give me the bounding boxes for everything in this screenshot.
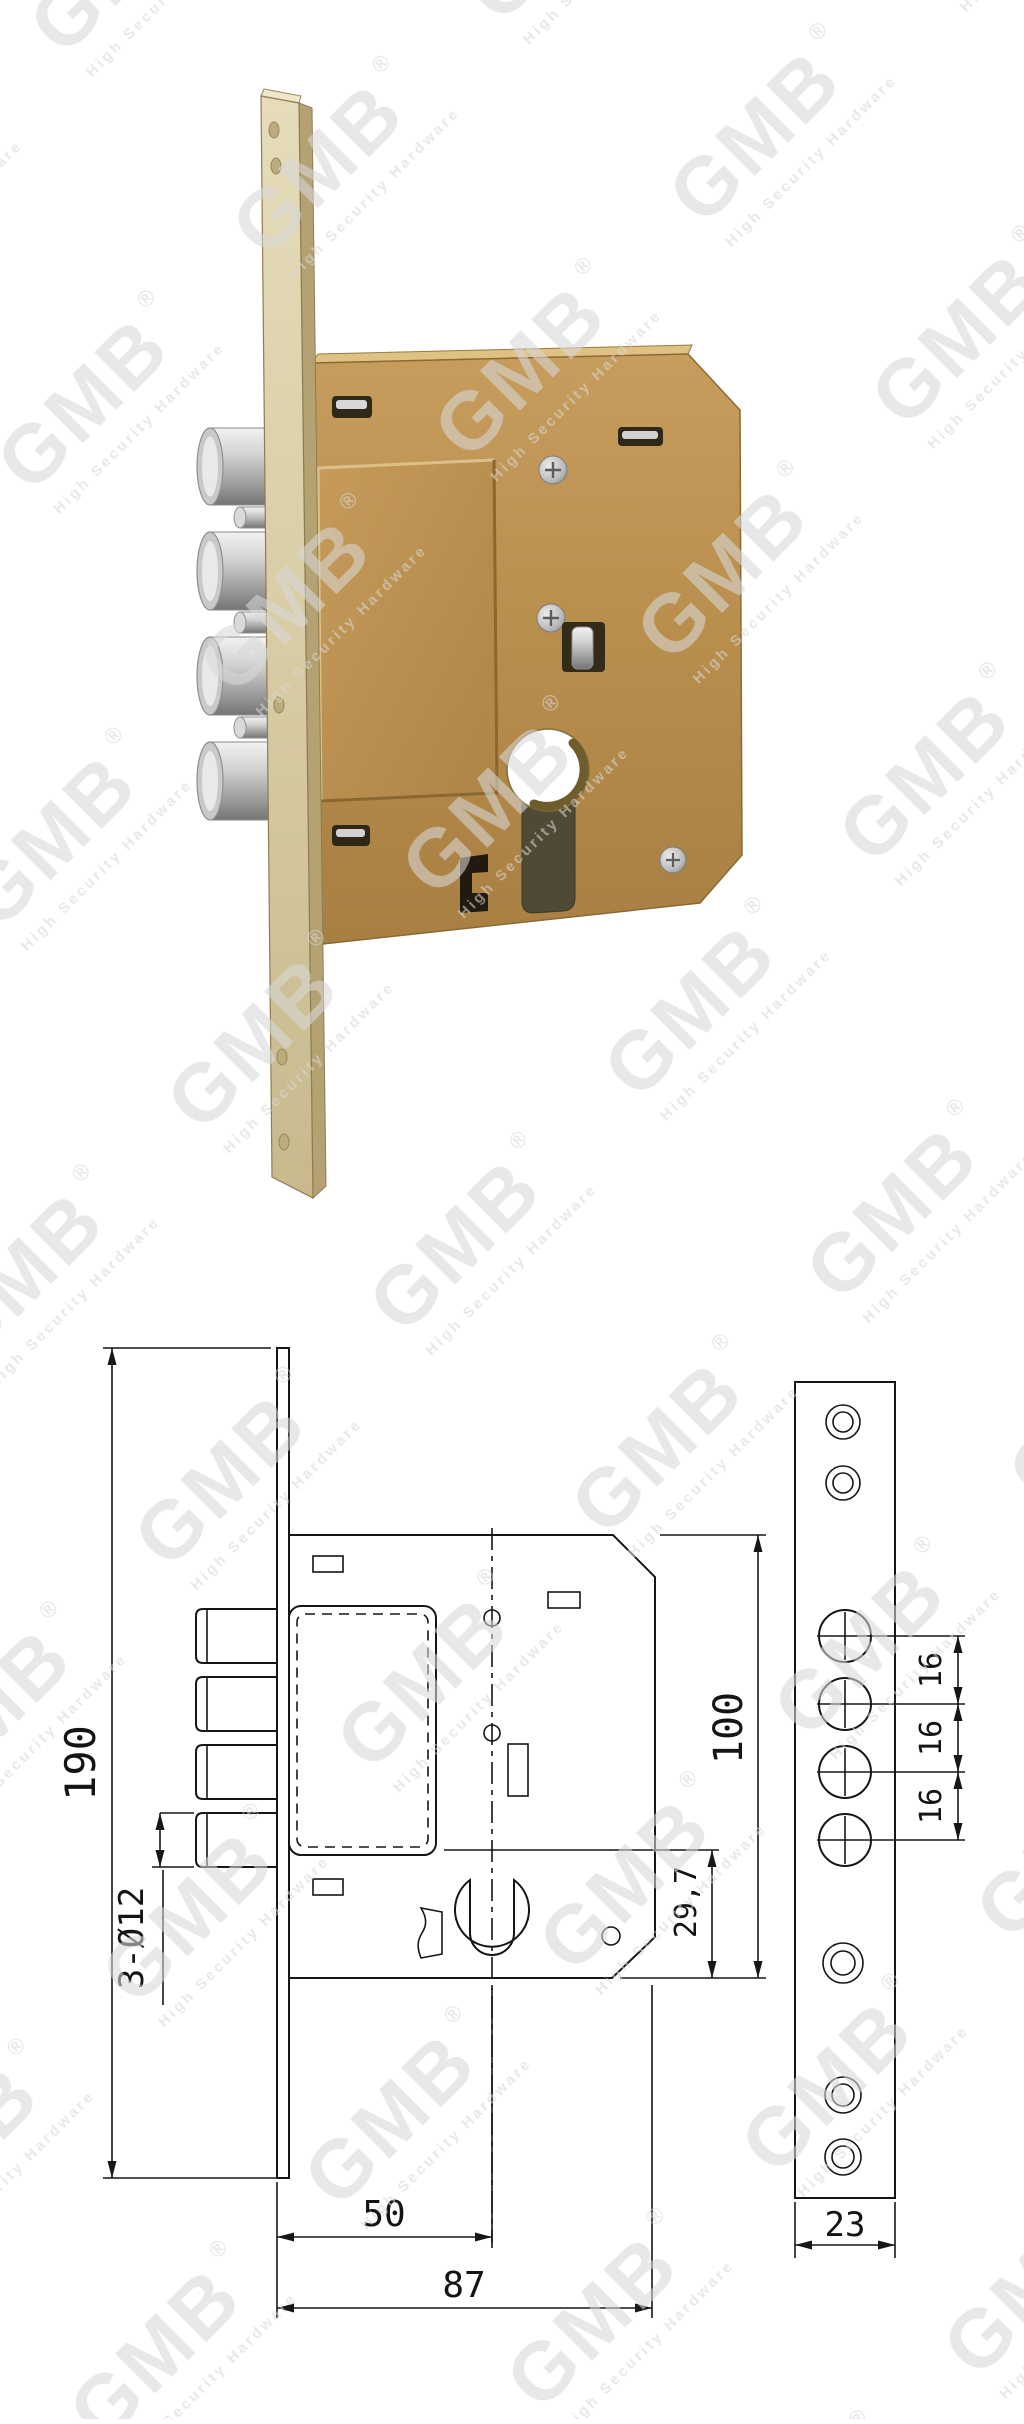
lock-product-canvas: GMB ® High Security Hardware (0, 0, 1024, 2419)
drawing-slot (508, 1744, 528, 1796)
deadbolt-pin (197, 532, 268, 610)
dim-label-backset: 50 (362, 2194, 405, 2235)
case-slot-top-right (618, 427, 663, 446)
case-screw-top (539, 456, 567, 484)
strike-bar-countersunk-holes (823, 1405, 863, 2175)
deadbolt-pin (197, 637, 268, 715)
drawing-faceplate (277, 1348, 289, 2178)
dim-label-case-height: 100 (706, 1692, 752, 1764)
drawing-main-view (196, 1348, 719, 2243)
dim-label-bolt-spacing-3: 16 (914, 1788, 949, 1824)
drawing-deadbolts (196, 1609, 277, 1867)
drawing-follower-box-hidden (297, 1614, 428, 1847)
drawing-small-hole (602, 1927, 620, 1945)
case-raised-panel (318, 460, 497, 801)
dim-label-bolt-diameter: 3-Ø12 (112, 1887, 152, 1989)
drawing-follower-box (289, 1606, 436, 1855)
dim-label-bolt-spacing-2: 16 (914, 1720, 949, 1756)
deadbolt-pin (197, 428, 268, 505)
case-screw-middle (537, 604, 565, 632)
dim-label-faceplate-height: 190 (56, 1725, 105, 1801)
dim-label-bolt-spacing-1: 16 (914, 1652, 949, 1688)
stub-pin (234, 507, 268, 528)
drawing-strike-bar: 16 16 16 23 (795, 1382, 965, 2258)
dim-label-bar-width: 23 (825, 2205, 866, 2245)
product-sheet: GMB ® High Security Hardware (0, 0, 1024, 2419)
drawing-dimensions: 190 3-Ø12 29,7 100 50 87 (56, 1348, 766, 2318)
deadbolt-pins-photo (197, 428, 268, 820)
drawing-case-outline (289, 1535, 655, 1978)
case-latch-tab (562, 622, 605, 672)
deadbolt-pin (197, 742, 268, 820)
case-slot-top-left (332, 396, 372, 418)
drawing-slot (313, 1879, 343, 1895)
case-screw-bottom-right (660, 847, 686, 873)
technical-drawing: 190 3-Ø12 29,7 100 50 87 (56, 1348, 965, 2318)
lock-photo (197, 89, 742, 1198)
stub-pin (234, 717, 268, 738)
lock-case-photo (312, 345, 742, 945)
drawing-slot (313, 1556, 343, 1572)
stub-pin (234, 612, 268, 633)
strike-bar-width-dim: 23 (795, 2202, 895, 2258)
dim-label-case-depth: 87 (442, 2265, 485, 2306)
faceplate-photo (261, 89, 326, 1198)
drawing-slot (548, 1592, 580, 1608)
dim-label-cylinder-to-bottom: 29,7 (669, 1866, 704, 1938)
case-slot-bottom-left (332, 825, 370, 846)
strike-bar-spacing-dims: 16 16 16 (914, 1636, 958, 1840)
drawing-clip (418, 1908, 442, 1958)
